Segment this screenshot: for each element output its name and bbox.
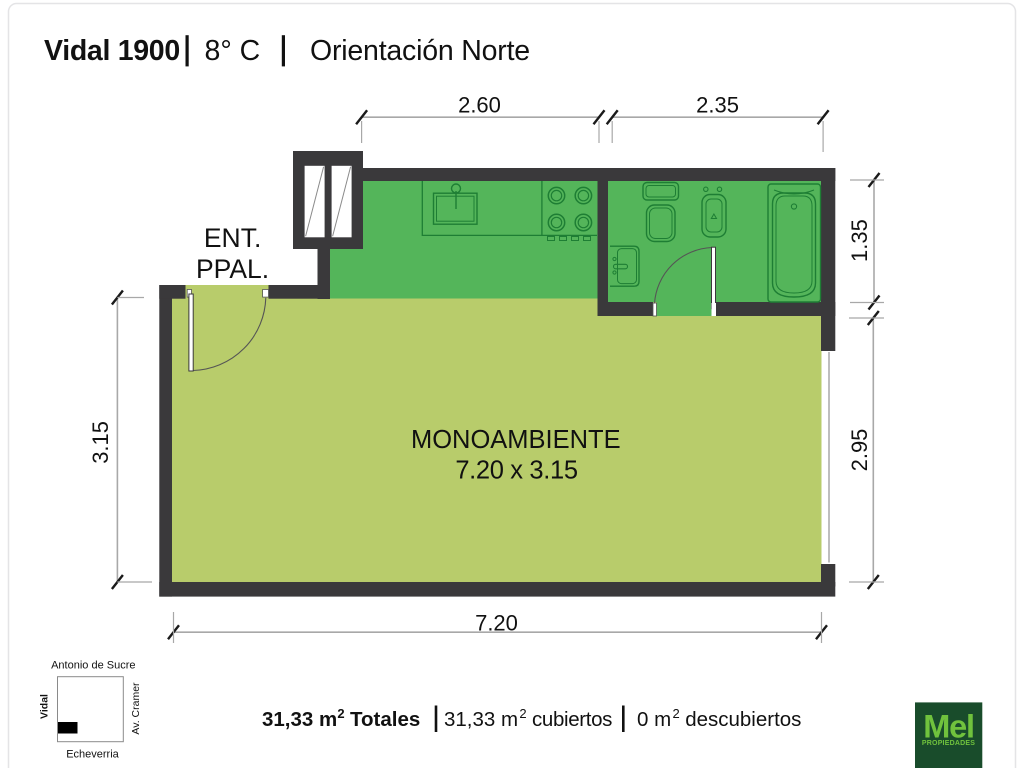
svg-text:31,33 m: 31,33 m bbox=[262, 708, 337, 731]
svg-text:Echeverria: Echeverria bbox=[66, 749, 119, 761]
svg-text:2: 2 bbox=[337, 706, 344, 721]
svg-text:1.35: 1.35 bbox=[847, 219, 872, 262]
svg-text:2: 2 bbox=[519, 706, 526, 721]
svg-text:2.95: 2.95 bbox=[847, 429, 872, 472]
svg-text:31,33 m: 31,33 m bbox=[444, 708, 518, 731]
svg-text:8° C: 8° C bbox=[205, 35, 261, 67]
svg-text:Antonio de Sucre: Antonio de Sucre bbox=[51, 660, 135, 672]
svg-text:Totales: Totales bbox=[350, 708, 420, 731]
svg-text:2.60: 2.60 bbox=[458, 93, 501, 118]
svg-text:Av. Cramer: Av. Cramer bbox=[130, 682, 142, 735]
svg-text:PROPIEDADES: PROPIEDADES bbox=[922, 740, 975, 747]
svg-text:2.35: 2.35 bbox=[696, 93, 739, 118]
svg-text:descubiertos: descubiertos bbox=[685, 708, 801, 731]
svg-text:7.20: 7.20 bbox=[475, 611, 518, 636]
svg-text:MONOAMBIENTE: MONOAMBIENTE bbox=[411, 426, 621, 454]
svg-text:2: 2 bbox=[673, 706, 680, 721]
svg-text:PPAL.: PPAL. bbox=[196, 254, 269, 284]
svg-text:Vidal 1900: Vidal 1900 bbox=[44, 35, 180, 67]
svg-text:7.20 x 3.15: 7.20 x 3.15 bbox=[455, 456, 577, 484]
svg-text:3.15: 3.15 bbox=[88, 421, 113, 464]
svg-text:Vidal: Vidal bbox=[39, 694, 51, 719]
svg-text:ENT.: ENT. bbox=[204, 223, 261, 253]
svg-text:cubiertos: cubiertos bbox=[532, 708, 612, 731]
svg-text:0 m: 0 m bbox=[637, 708, 671, 731]
svg-text:Orientación Norte: Orientación Norte bbox=[310, 35, 530, 67]
